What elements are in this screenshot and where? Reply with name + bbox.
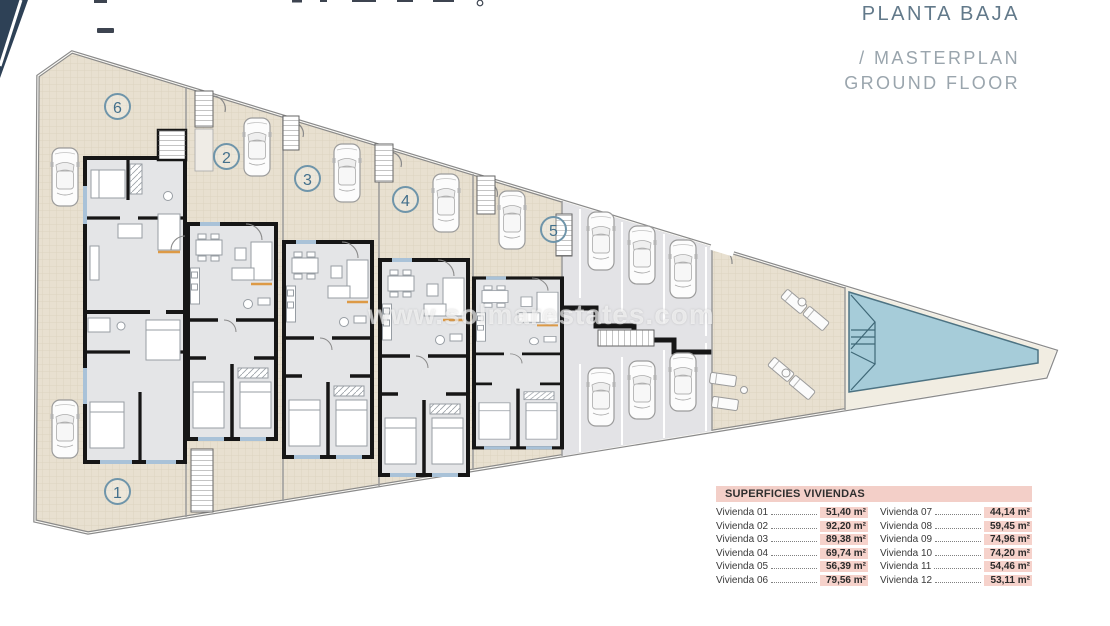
house-units-6-1 (85, 130, 186, 462)
table-row: Vivienda 0974,96 m² (880, 534, 1032, 548)
masterplan-page: PLANTA BAJA / MASTERPLAN GROUND FLOOR ww… (0, 0, 1110, 626)
pool-area (845, 287, 1056, 410)
vivienda-area: 69,74 m² (820, 548, 868, 559)
table-row: Vivienda 0292,20 m² (716, 521, 868, 535)
vivienda-area: 53,11 m² (984, 575, 1032, 586)
dotted-leader (935, 541, 981, 542)
house-unit-3 (284, 242, 372, 457)
vivienda-label: Vivienda 03 (716, 534, 768, 545)
vivienda-area: 44,14 m² (984, 507, 1032, 518)
vivienda-label: Vivienda 08 (880, 521, 932, 532)
unit-badge-2: 2 (213, 143, 240, 170)
vivienda-area: 92,20 m² (820, 521, 868, 532)
vivienda-label: Vivienda 05 (716, 561, 768, 572)
dotted-leader (771, 582, 817, 583)
vivienda-area: 51,40 m² (820, 507, 868, 518)
vivienda-label: Vivienda 12 (880, 575, 932, 586)
vivienda-area: 74,20 m² (984, 548, 1032, 559)
vivienda-label: Vivienda 10 (880, 548, 932, 559)
table-row: Vivienda 0859,45 m² (880, 521, 1032, 535)
unit-badge-5: 5 (540, 216, 567, 243)
table-row: Vivienda 0389,38 m² (716, 534, 868, 548)
dotted-leader (771, 528, 817, 529)
page-subtitle-ground-floor: GROUND FLOOR (844, 71, 1020, 96)
corner-ribbon (0, 0, 28, 78)
page-title: PLANTA BAJA (844, 4, 1020, 24)
vivienda-label: Vivienda 06 (716, 575, 768, 586)
table-row: Vivienda 1253,11 m² (880, 575, 1032, 589)
vivienda-area: 89,38 m² (820, 534, 868, 545)
table-row: Vivienda 0469,74 m² (716, 548, 868, 562)
vivienda-area: 59,45 m² (984, 521, 1032, 532)
dotted-leader (935, 514, 981, 515)
table-row: Vivienda 1074,20 m² (880, 548, 1032, 562)
dotted-leader (771, 555, 817, 556)
dotted-leader (771, 568, 817, 569)
vivienda-label: Vivienda 04 (716, 548, 768, 559)
house-unit-4 (380, 260, 468, 475)
plan-title-block: PLANTA BAJA / MASTERPLAN GROUND FLOOR (844, 4, 1020, 96)
dotted-leader (771, 541, 817, 542)
unit-badge-1: 1 (104, 478, 131, 505)
vivienda-label: Vivienda 11 (880, 561, 931, 572)
dotted-leader (935, 582, 981, 583)
vivienda-area: 54,46 m² (984, 561, 1032, 572)
table-row: Vivienda 1154,46 m² (880, 561, 1032, 575)
unit-badge-3: 3 (294, 165, 321, 192)
dotted-leader (934, 568, 981, 569)
areas-table: SUPERFICIES VIVIENDAS Vivienda 0151,40 m… (716, 486, 1032, 589)
house-unit-2 (188, 224, 276, 439)
table-row: Vivienda 0556,39 m² (716, 561, 868, 575)
page-subtitle-masterplan: / MASTERPLAN (844, 46, 1020, 71)
table-row: Vivienda 0679,56 m² (716, 575, 868, 589)
areas-table-title: SUPERFICIES VIVIENDAS (716, 486, 1032, 502)
unit-badge-4: 4 (392, 186, 419, 213)
communal-stairs-icon (598, 330, 654, 346)
watermark: www.solmarestates.com (368, 299, 708, 331)
areas-table-col1: Vivienda 0151,40 m² Vivienda 0292,20 m² … (716, 507, 868, 589)
vivienda-label: Vivienda 01 (716, 507, 768, 518)
vivienda-label: Vivienda 02 (716, 521, 768, 532)
table-row: Vivienda 0151,40 m² (716, 507, 868, 521)
site-plan (35, 52, 1056, 533)
areas-table-col2: Vivienda 0744,14 m² Vivienda 0859,45 m² … (880, 507, 1032, 589)
table-row: Vivienda 0744,14 m² (880, 507, 1032, 521)
unit-badge-6: 6 (104, 93, 131, 120)
dotted-leader (935, 528, 981, 529)
vivienda-area: 56,39 m² (820, 561, 868, 572)
dotted-leader (935, 555, 981, 556)
vivienda-label: Vivienda 07 (880, 507, 932, 518)
dotted-leader (771, 514, 817, 515)
cropped-header-marks (94, 0, 483, 33)
vivienda-area: 79,56 m² (820, 575, 868, 586)
vivienda-label: Vivienda 09 (880, 534, 932, 545)
vivienda-area: 74,96 m² (984, 534, 1032, 545)
